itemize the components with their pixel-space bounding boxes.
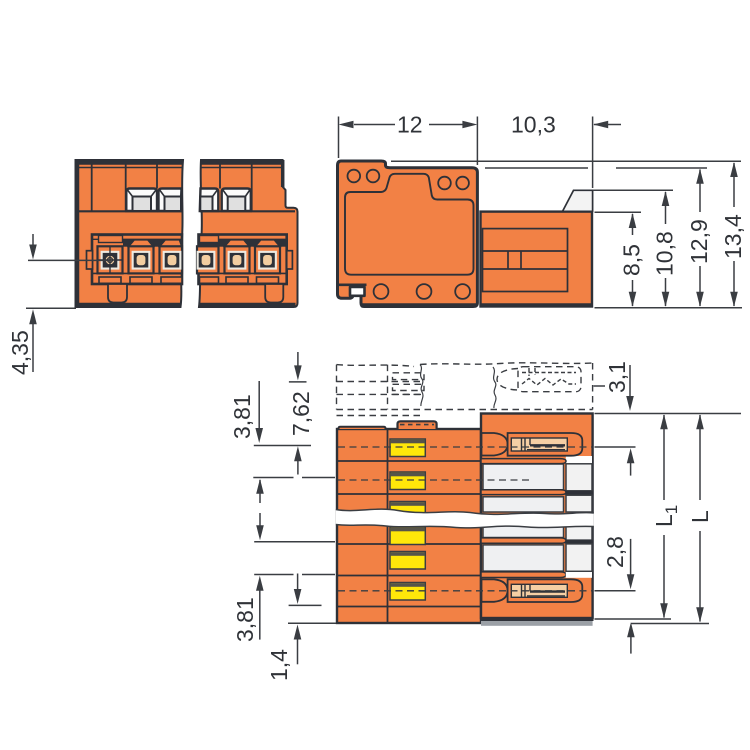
svg-text:13,4: 13,4 <box>720 214 746 259</box>
svg-text:7,62: 7,62 <box>288 391 314 436</box>
svg-text:3,81: 3,81 <box>232 597 258 642</box>
svg-text:8,5: 8,5 <box>619 244 645 276</box>
svg-text:12: 12 <box>397 112 423 138</box>
svg-text:1,4: 1,4 <box>266 649 292 681</box>
svg-text:4,35: 4,35 <box>7 330 33 375</box>
svg-text:10,8: 10,8 <box>652 231 678 276</box>
svg-text:12,9: 12,9 <box>686 219 712 264</box>
svg-text:L: L <box>687 510 713 523</box>
svg-text:3,81: 3,81 <box>229 394 255 439</box>
svg-text:2,8: 2,8 <box>602 536 628 568</box>
svg-text:10,3: 10,3 <box>511 112 556 138</box>
svg-text:3,1: 3,1 <box>604 361 630 393</box>
